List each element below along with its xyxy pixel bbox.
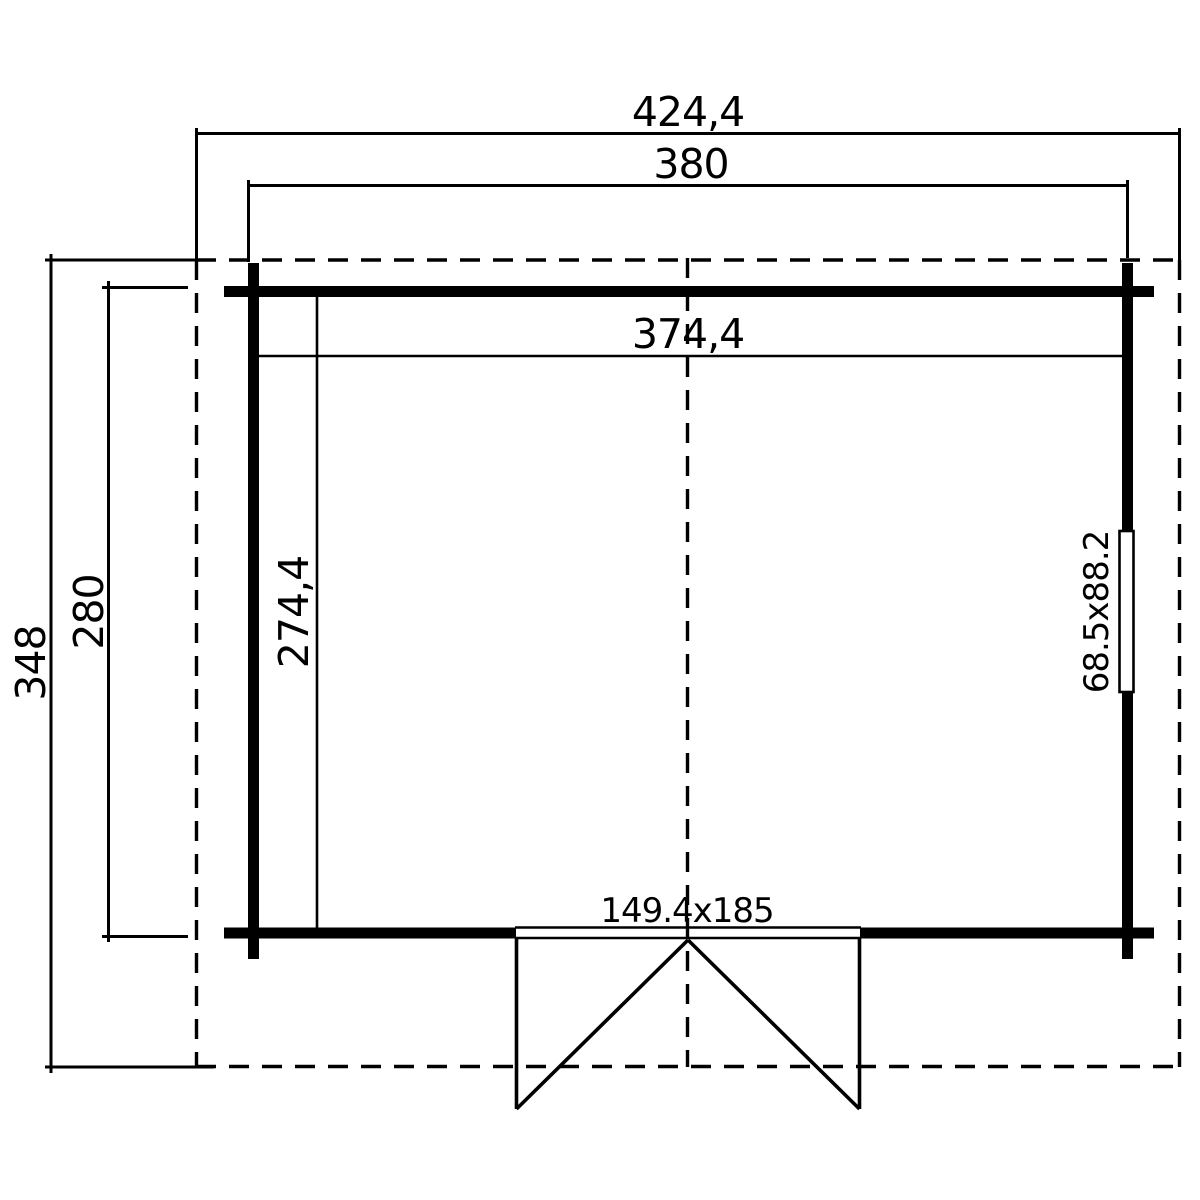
dim-wall-depth: 280: [65, 281, 188, 942]
wall-width-label: 380: [653, 140, 728, 188]
overall-width-label: 424,4: [632, 88, 744, 136]
door-leaf-left: [517, 940, 689, 1109]
door-leaf-right: [688, 940, 860, 1109]
door-size-label: 149.4x185: [600, 891, 773, 931]
dim-interior-width: 374,4: [259, 310, 1122, 358]
wall-depth-label: 280: [65, 574, 113, 649]
interior-depth-label: 274,4: [270, 556, 318, 668]
window-size-label: 68.5x88.2: [1077, 531, 1117, 694]
dim-overall-depth: 348: [7, 254, 214, 1073]
overall-depth-label: 348: [7, 625, 55, 700]
window-symbol: [1120, 531, 1134, 692]
dim-interior-depth: 274,4: [270, 296, 318, 928]
dim-wall-width: 380: [248, 140, 1128, 262]
floor-plan-drawing: 424,4 380 348 280: [0, 0, 1200, 1200]
interior-width-label: 374,4: [632, 310, 744, 358]
floor-plan-page: 424,4 380 348 280: [0, 0, 1200, 1200]
window: 68.5x88.2: [1077, 531, 1134, 694]
